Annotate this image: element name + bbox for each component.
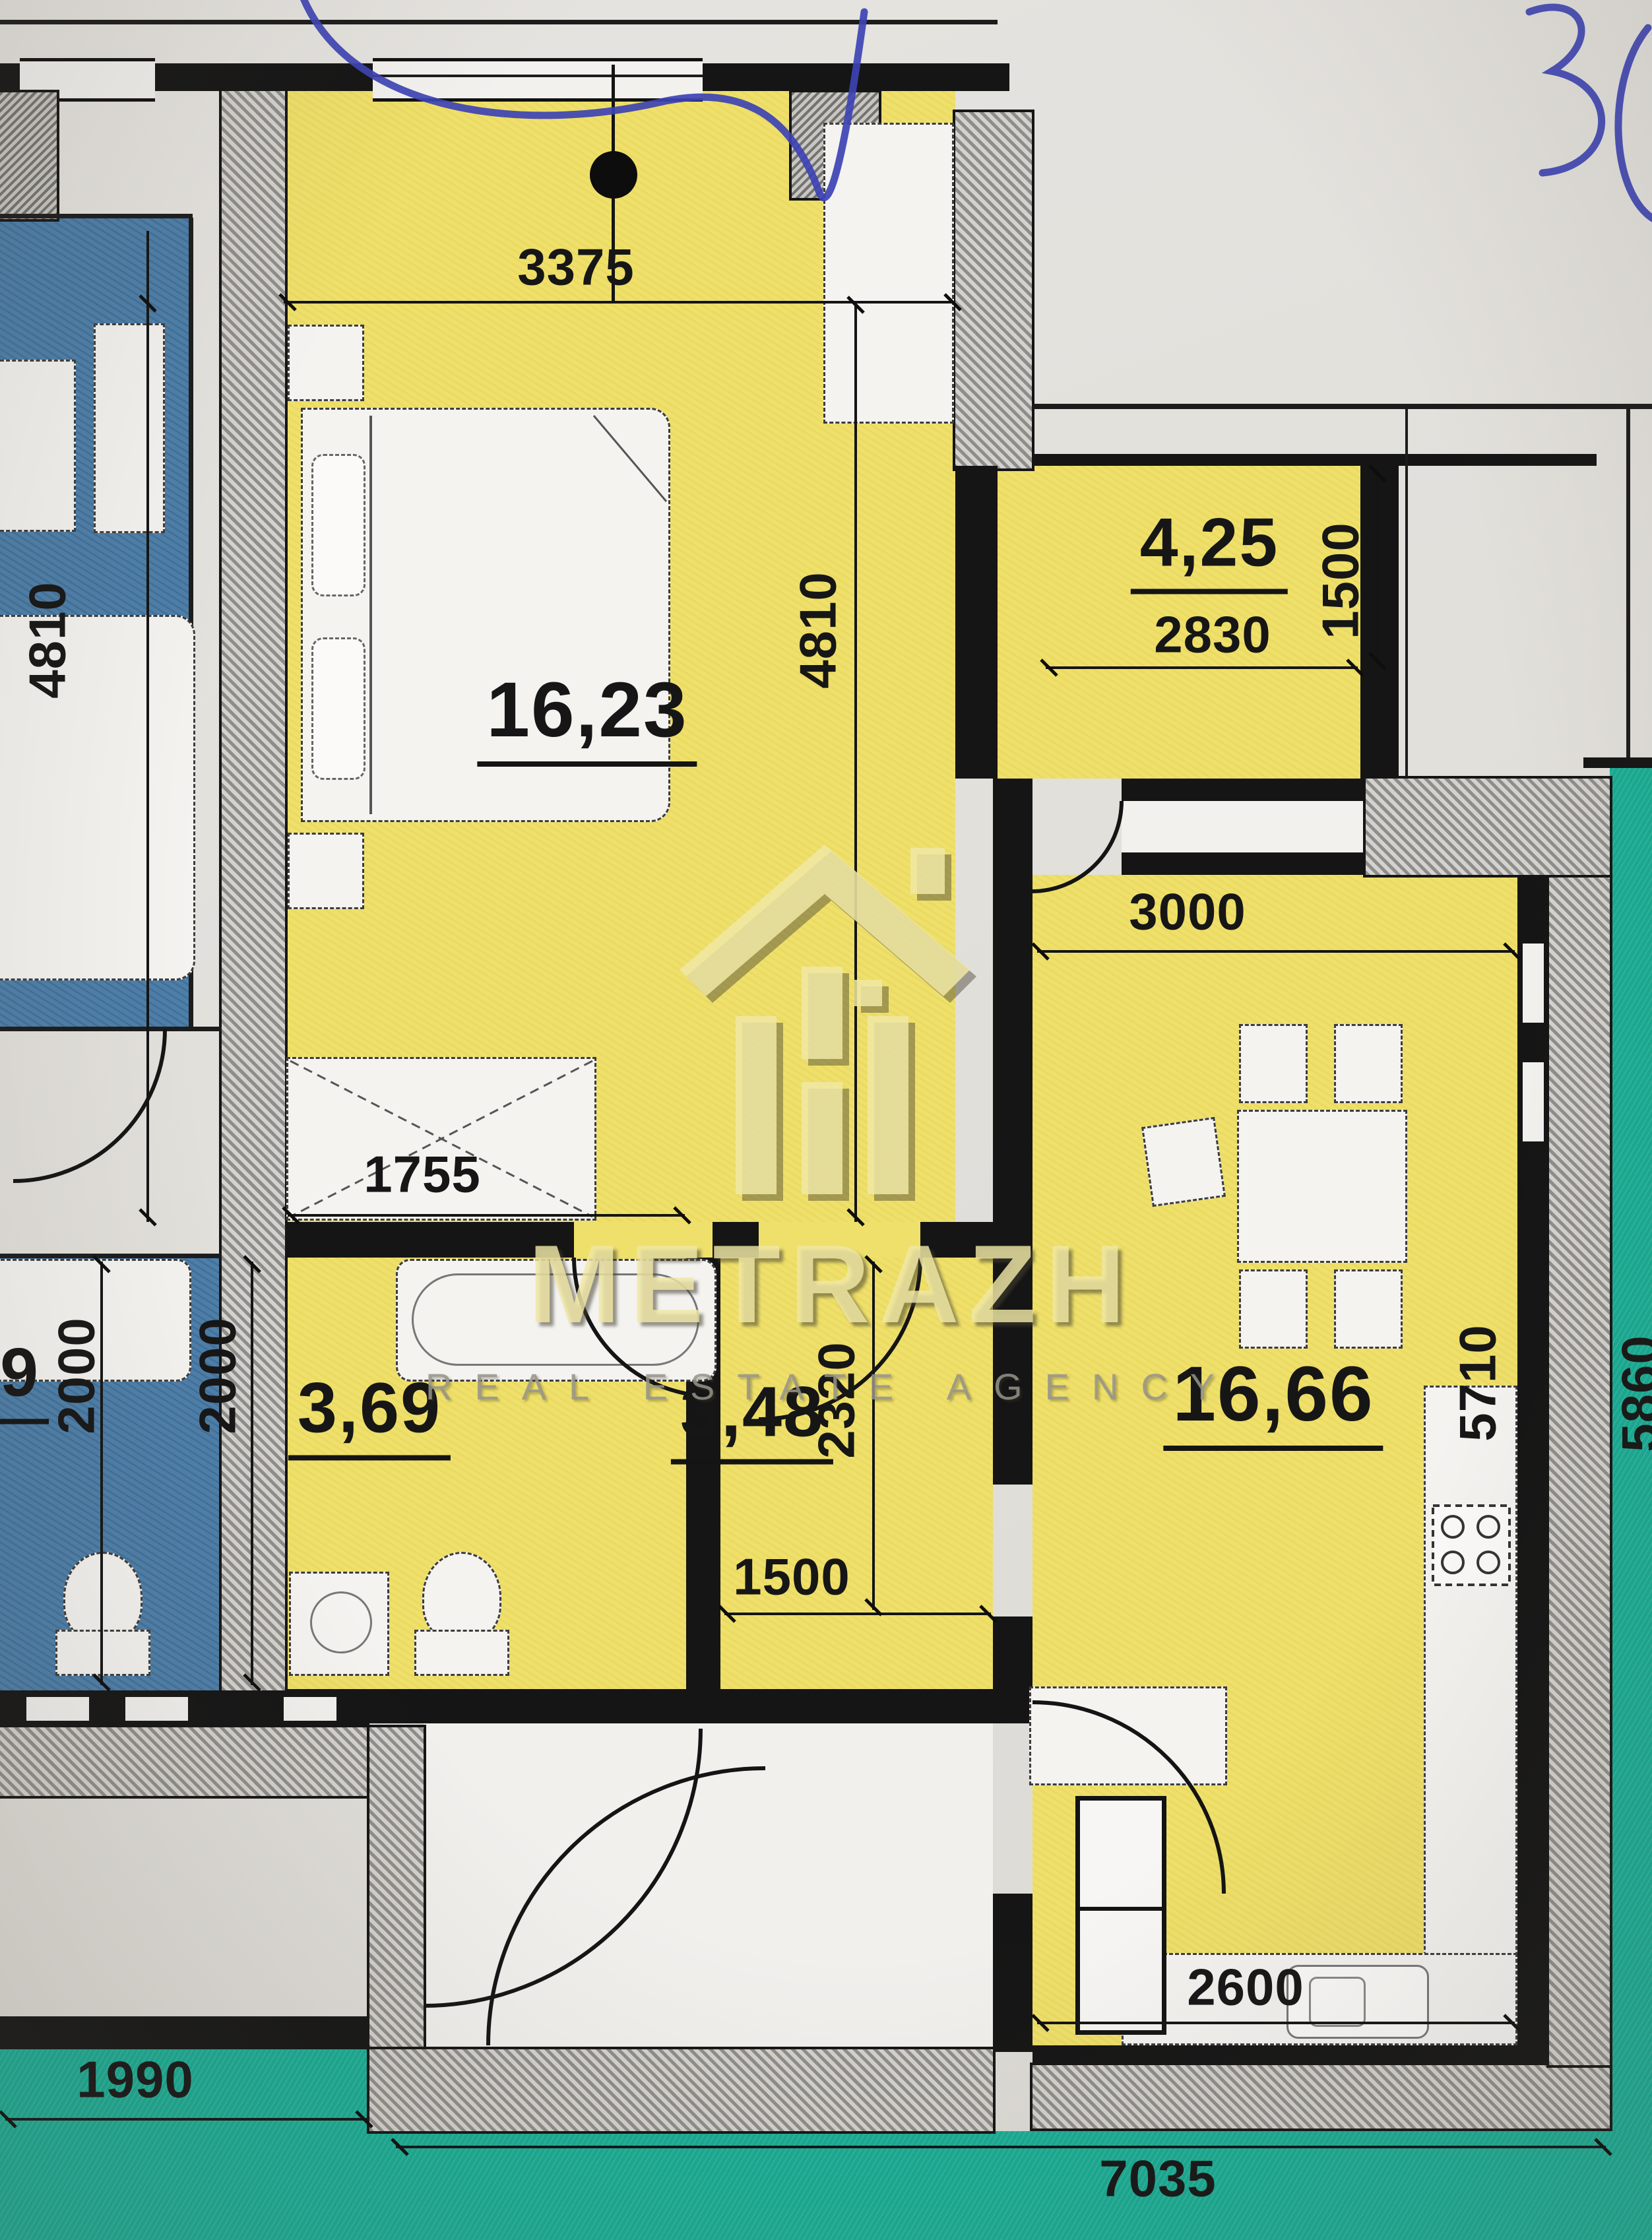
pen-note-stroke [1618, 28, 1652, 221]
dim-bedroom-height-left: 4810 [18, 581, 78, 699]
dim-line [288, 1214, 685, 1217]
floorplan-photo: 3375 4810 4810 2830 1500 3000 1755 2000 … [0, 0, 1652, 2240]
kitchen-area-label: 16,66 [1163, 1349, 1383, 1451]
hallway-area-label: 3,48 [671, 1370, 833, 1465]
dim-kitchen-height: 5710 [1448, 1324, 1508, 1442]
dim-bottom-left: 1990 [77, 2050, 194, 2110]
lobby-door-arc [424, 1729, 701, 2006]
dim-line [872, 1262, 875, 1610]
dim-line [1376, 471, 1379, 664]
dim-line [724, 1613, 991, 1615]
pen-annotations [0, 0, 1652, 462]
dim-bathroom-height: 2000 [188, 1317, 248, 1434]
neighbor-area-label: 9 [0, 1334, 49, 1424]
dim-kitchen-top-width: 3000 [1129, 882, 1246, 942]
dim-hallway-width: 1500 [733, 1547, 850, 1607]
entrance-door-arc [1032, 1702, 1224, 1894]
bathroom-area-label: 3,69 [288, 1366, 451, 1461]
dim-line [1037, 950, 1515, 953]
handwritten-note-text: 30 [1537, 26, 1544, 34]
balcony-area-label: 4,25 [1131, 504, 1288, 594]
dim-line [1046, 666, 1358, 669]
dim-balcony-width: 2830 [1154, 605, 1271, 665]
bedroom-area-label: 16,23 [477, 665, 697, 767]
stove-icon [1433, 1506, 1509, 1585]
pen-swoosh [300, 0, 864, 198]
dim-line [251, 1262, 253, 1685]
lobby-door-arc [488, 1768, 765, 2045]
dim-bathroom-width: 1755 [364, 1145, 481, 1205]
dim-kitchen-bottom-width: 2600 [1187, 1958, 1304, 2018]
dim-balcony-depth: 1500 [1311, 522, 1371, 639]
dim-right-side-total: 5860 [1610, 1335, 1652, 1452]
dim-bedroom-height-right: 4810 [788, 571, 848, 689]
dim-bottom-total: 7035 [1099, 2149, 1217, 2209]
dim-neighbor-bath-height: 2000 [47, 1317, 107, 1434]
dim-line [396, 2146, 1606, 2148]
dim-line [1037, 2022, 1515, 2024]
balcony-door-arc [1031, 801, 1122, 891]
dim-line [5, 2118, 367, 2121]
neighbor-door-arc [13, 1029, 165, 1181]
